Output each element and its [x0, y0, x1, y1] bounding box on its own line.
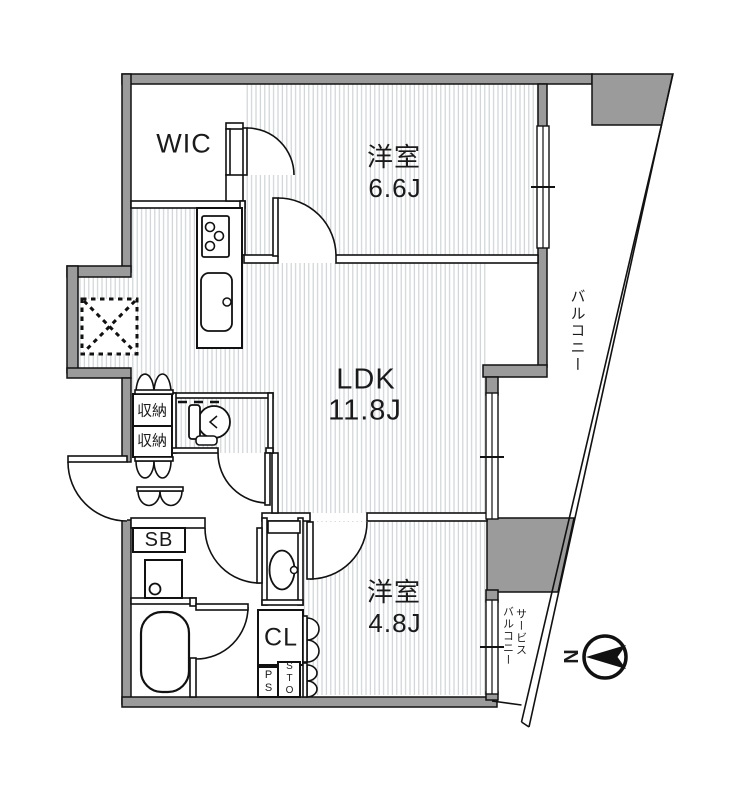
wall-wic-right-bottom: [226, 175, 243, 201]
label-storage-sto: STO: [284, 661, 294, 697]
floor-plan: WIC 洋室 6.6J LDK 11.8J 洋室 4.8J 収納 収納 SB C…: [0, 0, 749, 800]
label-closet-cl: CL: [264, 626, 298, 651]
bathroom-door: [196, 604, 248, 659]
wall-right-step: [483, 365, 547, 377]
label-shoe-box: SB: [145, 530, 174, 550]
label-closet-lower: 収納: [137, 434, 167, 449]
wall-right-upper: [538, 84, 547, 128]
washbasin-shelf: [268, 521, 300, 533]
refrigerator-space-icon: [82, 299, 137, 354]
wall-top: [122, 74, 592, 84]
wall-wic-bottom: [131, 201, 245, 208]
wall-bedroom1-south-east: [336, 255, 538, 263]
room-label-ldk-size: 11.8J: [328, 397, 402, 426]
label-compass-north: N: [562, 648, 582, 663]
room-label-bedroom2-size: 4.8J: [368, 610, 421, 636]
wall-right-ldk: [486, 377, 498, 395]
kitchen-sink-icon: [201, 273, 232, 331]
wall-alcove-left: [67, 266, 78, 373]
entrance-door: [68, 456, 127, 521]
stove-icon: [202, 216, 229, 257]
wall-left-mid: [122, 378, 131, 462]
label-balcony: バルコニー: [570, 289, 585, 374]
washing-machine-icon: [145, 560, 182, 598]
wall-washbasin-bottom: [262, 600, 303, 605]
room-label-bedroom1-size: 6.6J: [368, 175, 421, 201]
washroom-door: [205, 528, 262, 583]
wall-hall-washroom: [131, 518, 205, 528]
compass-icon: [584, 636, 626, 678]
wall-bathroom-right-bottom: [190, 658, 196, 697]
wall-bathroom-right-top: [190, 598, 196, 606]
wall-toilet-bottom-west: [171, 448, 218, 453]
wall-alcove-bottom: [67, 368, 131, 378]
room-label-wic: WIC: [156, 131, 211, 158]
wall-bottom: [122, 697, 497, 707]
label-service-balcony-word2: バルコニー: [502, 606, 513, 666]
label-service-balcony-word1: サービス: [515, 608, 526, 656]
room-label-bedroom2-type: 洋室: [367, 579, 421, 605]
room-label-ldk-type: LDK: [336, 366, 395, 395]
wall-toilet-top: [171, 393, 273, 398]
wall-wic-right-top: [226, 123, 243, 129]
wall-ldk-bedroom2-east: [367, 513, 487, 521]
wall-left-lower: [122, 520, 131, 704]
balcony-rail-end-cap: [522, 722, 530, 727]
wall-left-upper: [122, 74, 131, 272]
wall-toilet-right: [268, 393, 273, 453]
wall-top-right-block: [592, 74, 673, 125]
wall-wic-right-jamb: [226, 129, 230, 175]
washbasin-icon: [270, 551, 298, 590]
label-closet-upper: 収納: [137, 404, 167, 419]
room-label-bedroom1-type: 洋室: [367, 144, 421, 170]
label-pipe-space: PS: [263, 669, 274, 695]
wall-hall-ldk: [272, 453, 278, 513]
floor-kitchen-strip: [131, 208, 197, 263]
wall-right-mid: [538, 247, 547, 367]
bathtub-icon: [141, 612, 189, 692]
